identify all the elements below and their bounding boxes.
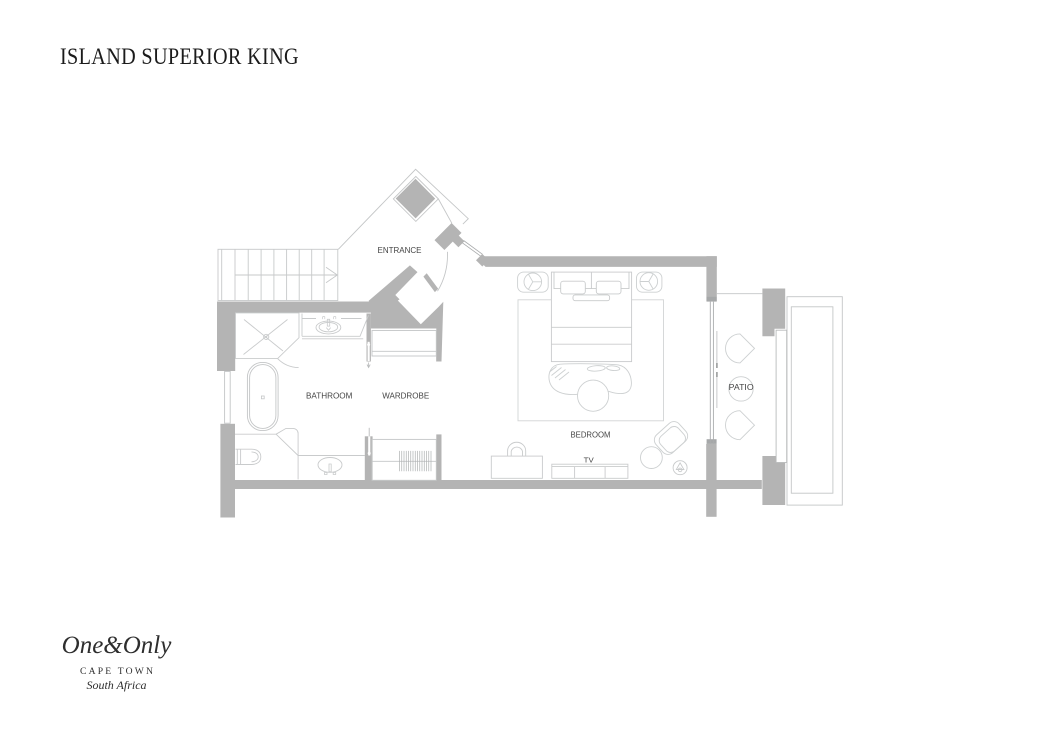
svg-text:TV: TV (584, 456, 594, 465)
svg-text:ENTRANCE: ENTRANCE (378, 245, 422, 255)
svg-text:BEDROOM: BEDROOM (571, 430, 611, 440)
svg-text:BATHROOM: BATHROOM (306, 391, 353, 401)
svg-text:WARDROBE: WARDROBE (382, 391, 429, 401)
svg-text:PATIO: PATIO (729, 382, 754, 392)
